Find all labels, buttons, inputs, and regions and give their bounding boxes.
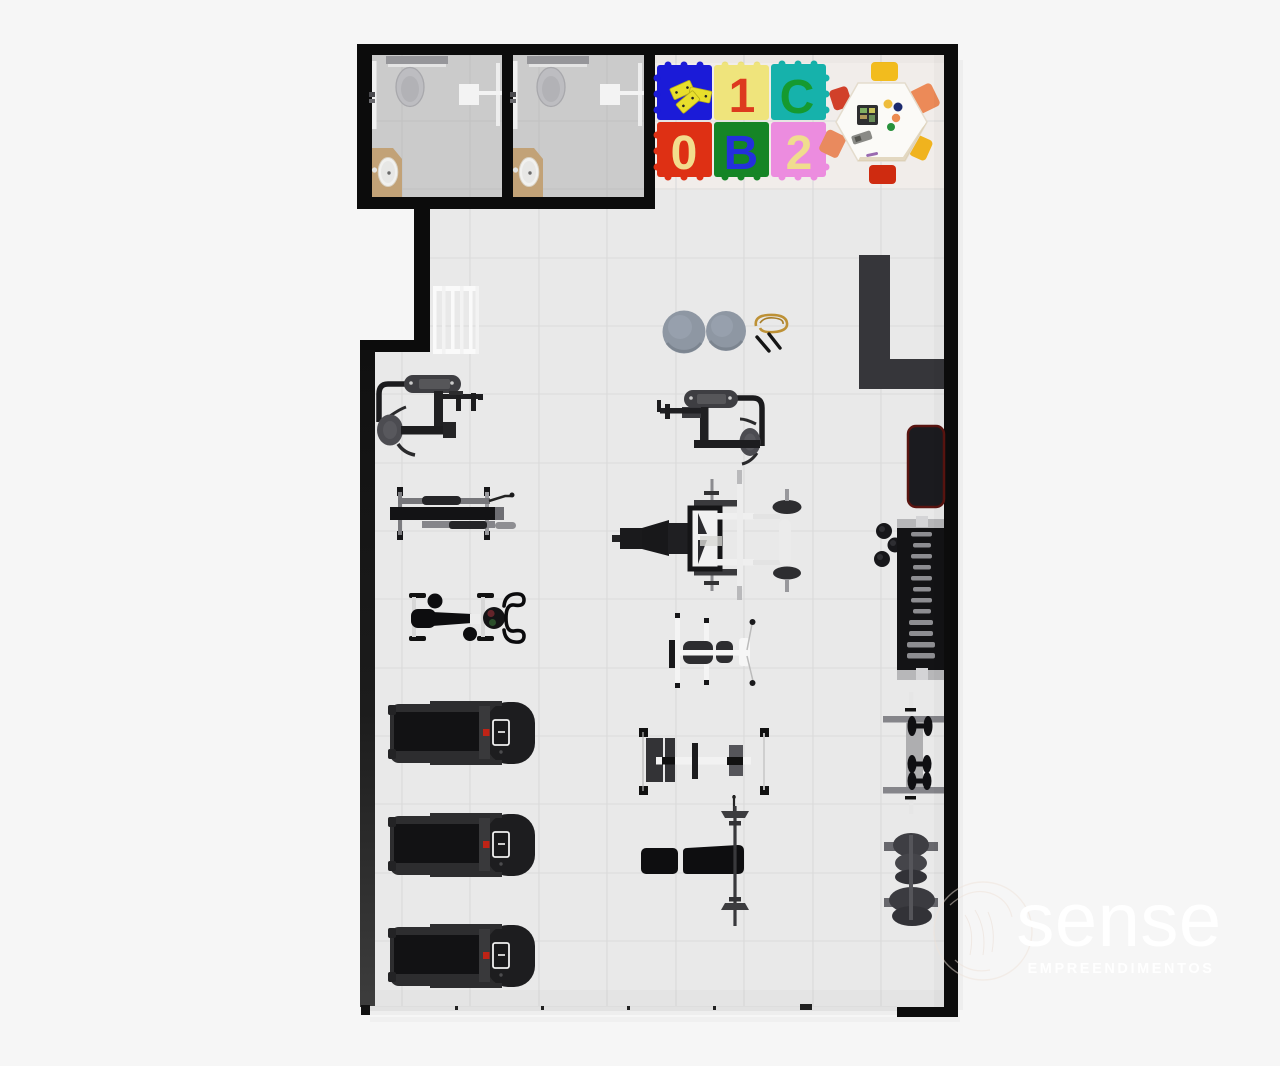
svg-text:0: 0 <box>671 127 698 180</box>
svg-text:sense: sense <box>1016 878 1221 963</box>
svg-text:2: 2 <box>786 127 813 180</box>
svg-text:C: C <box>780 71 815 124</box>
svg-text:B: B <box>724 127 759 180</box>
svg-text:EMPREENDIMENTOS: EMPREENDIMENTOS <box>1028 961 1215 977</box>
svg-text:1: 1 <box>729 70 756 123</box>
